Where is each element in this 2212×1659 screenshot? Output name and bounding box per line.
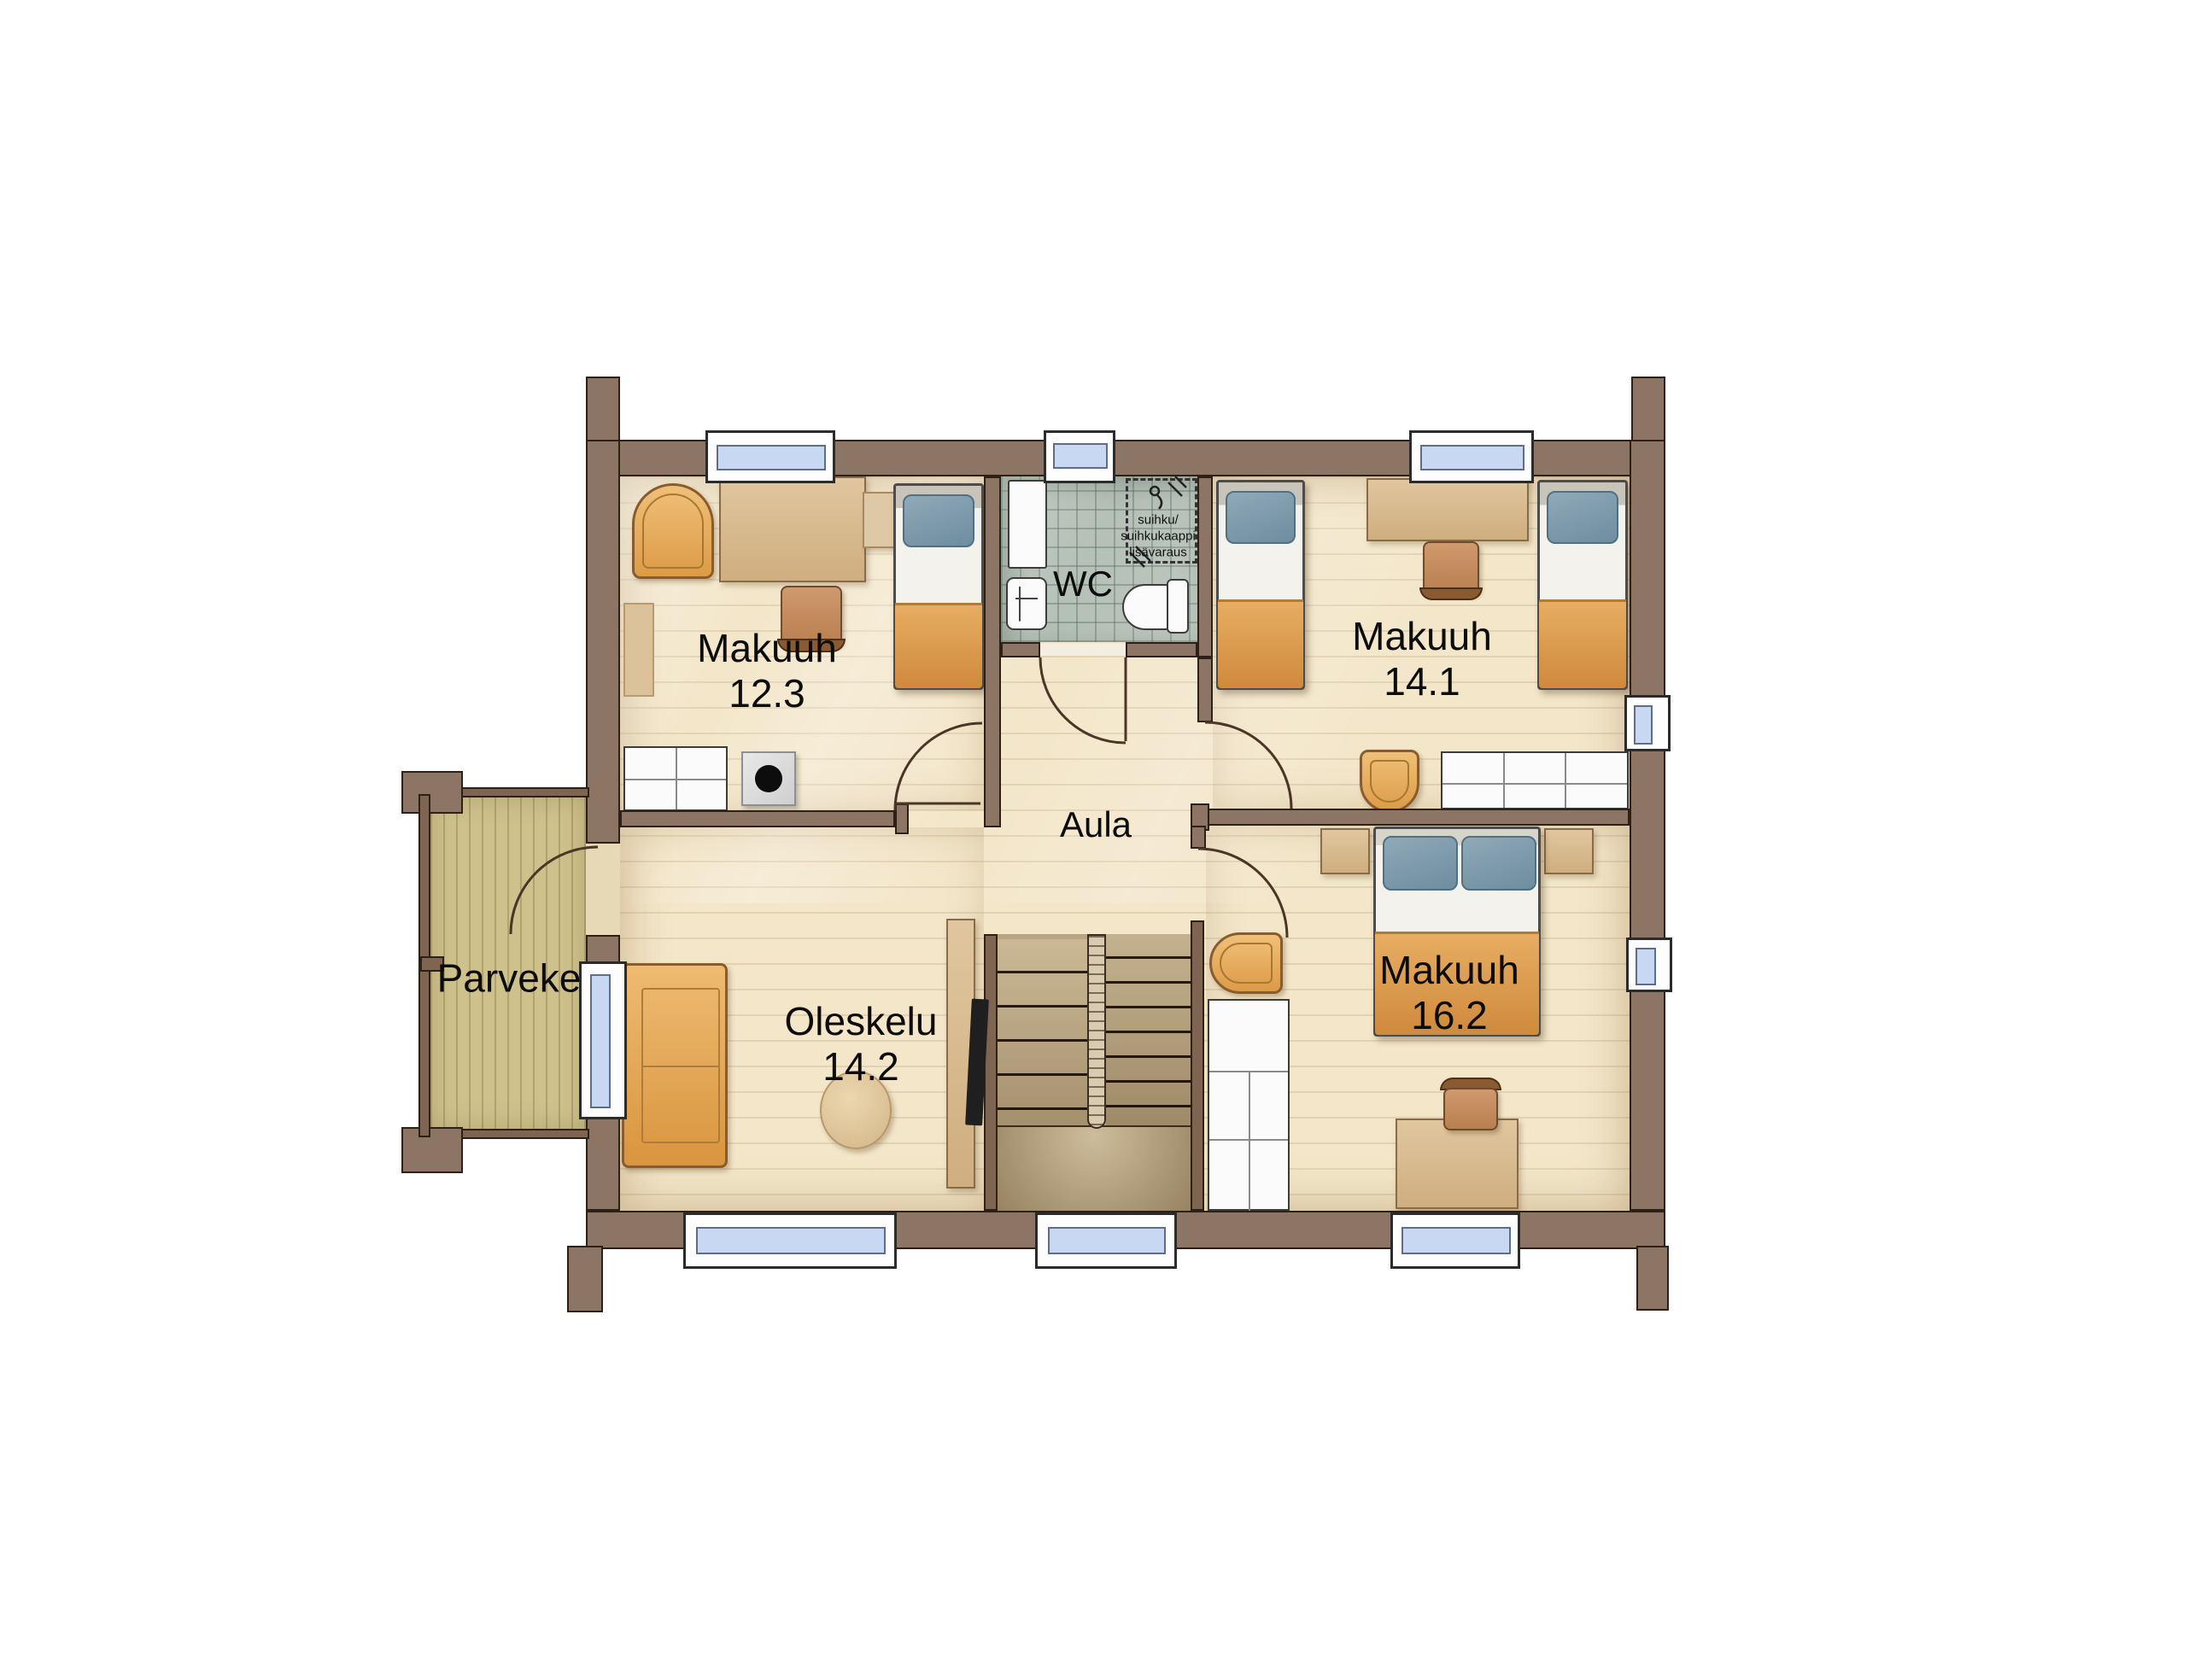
door-arc (1205, 722, 1291, 809)
wc-note-line: suihku/ (1121, 512, 1196, 529)
floor-plan: Makuuh 12.3 Makuuh 14.1 Makuuh 16.2 Oles… (0, 0, 2212, 1659)
room-name: WC (1053, 564, 1113, 605)
room-label-bedroom-large: Makuuh 16.2 (1379, 948, 1519, 1038)
room-name: Makuuh (1379, 948, 1519, 993)
room-label-bedroom-small: Makuuh 12.3 (697, 626, 837, 716)
room-name: Parveke (437, 956, 582, 1002)
door-arc (511, 847, 598, 934)
wc-note-line: suihkukaappi (1121, 529, 1196, 545)
room-name: Aula (1060, 804, 1132, 845)
door-arc (895, 723, 982, 810)
room-label-bedroom-mid: Makuuh 14.1 (1352, 614, 1492, 704)
wc-note-line: lisävaraus (1121, 545, 1196, 561)
door-arc (1198, 849, 1287, 938)
room-name: Makuuh (1352, 614, 1492, 659)
room-area: 16.2 (1379, 993, 1519, 1038)
wc-shower-note: suihku/ suihkukaappi lisävaraus (1121, 512, 1196, 561)
room-name: Makuuh (697, 626, 837, 671)
room-name: Oleskelu (785, 999, 938, 1044)
room-label-living: Oleskelu 14.2 (785, 999, 938, 1089)
room-label-balcony: Parveke (437, 956, 582, 1002)
room-area: 14.2 (785, 1044, 938, 1089)
room-area: 12.3 (697, 671, 837, 716)
room-label-wc: WC (1053, 564, 1113, 605)
room-label-hall: Aula (1060, 804, 1132, 845)
room-area: 14.1 (1352, 659, 1492, 704)
door-arc (1040, 657, 1126, 743)
